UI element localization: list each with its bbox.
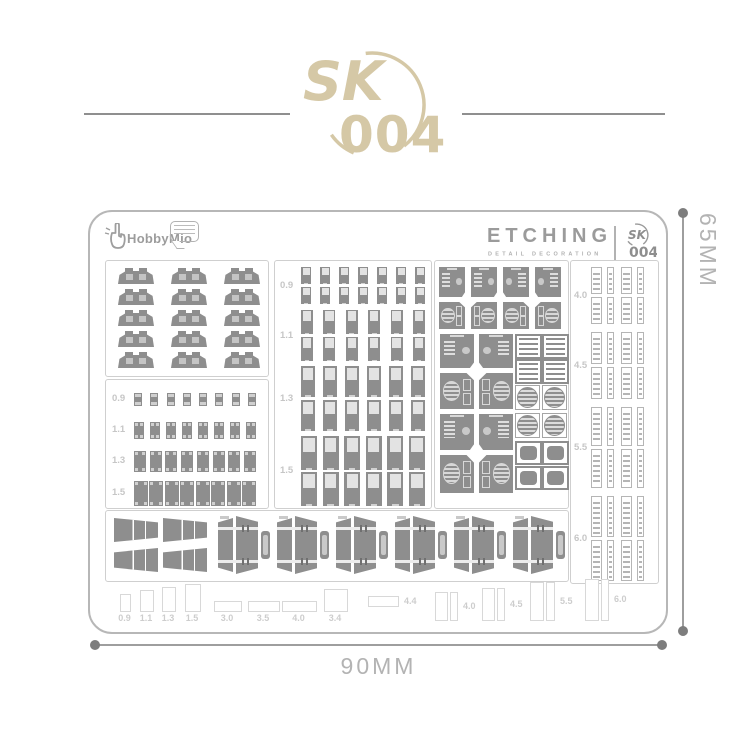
ruler-label: 1.5	[183, 613, 201, 623]
clip-slot	[232, 358, 239, 364]
buckle-window	[368, 438, 379, 452]
etched-part-vent	[503, 267, 529, 297]
clamp-tick	[483, 558, 485, 565]
panel-vent-slats	[444, 421, 455, 438]
buckle-window	[370, 311, 378, 321]
panel-disk-slot	[482, 476, 490, 489]
clip-slot	[192, 274, 199, 280]
buckle-window	[348, 338, 356, 348]
clip-slot	[232, 337, 239, 343]
clamp-tick	[424, 525, 426, 532]
clip-body	[171, 334, 207, 347]
buckle-window	[303, 338, 311, 348]
clamp-tick	[242, 558, 244, 565]
size-label: 1.3	[280, 393, 293, 404]
etched-part-disk	[479, 455, 513, 493]
buckle-window	[325, 402, 335, 414]
panel-disk-slot	[482, 379, 490, 391]
etched-part-buckle-tall	[301, 267, 311, 284]
etched-part-buckle-tall	[344, 436, 360, 470]
size-label: 1.1	[112, 424, 125, 435]
etched-part-wedge	[163, 548, 207, 572]
clip-body	[118, 334, 154, 347]
buckle-notch	[304, 283, 308, 284]
etched-part-buckle-tall	[358, 267, 368, 284]
etched-part-slat	[515, 334, 542, 359]
buckle-window	[347, 368, 357, 380]
buckle-notch	[417, 333, 422, 334]
panel-vent-dot	[538, 278, 544, 285]
etched-part-vent	[535, 267, 561, 297]
etched-part-disk	[479, 373, 513, 409]
etched-part-buckle	[182, 422, 192, 439]
ruler-swatch	[601, 579, 609, 621]
etched-part-buckle	[165, 451, 177, 472]
buckle-window	[415, 311, 423, 321]
etched-part-buckle-tall	[320, 267, 330, 284]
panel-disk-slot	[520, 306, 527, 316]
clip-slot	[192, 295, 199, 301]
dimension-dot	[678, 208, 688, 218]
clamp-tick	[537, 525, 539, 532]
etched-part-strip	[591, 449, 602, 488]
panel-vent-dot	[483, 427, 491, 435]
panel-disk-slot	[520, 316, 527, 326]
etched-part-buckle-tall	[415, 267, 425, 284]
etched-part-clip	[224, 289, 260, 305]
buckle-notch	[372, 360, 377, 361]
panel-disk-slot	[482, 393, 490, 405]
logo-number-text: 004	[339, 106, 446, 164]
etched-part-buckle	[248, 393, 256, 406]
ruler-swatch	[435, 592, 448, 621]
buckle-window	[347, 402, 357, 414]
etched-part-strip	[637, 332, 644, 364]
etched-part-buckle-tall	[387, 472, 403, 506]
clip-slot	[245, 337, 252, 343]
etched-part-buckle	[150, 451, 162, 472]
clamp-tab-inner	[440, 535, 445, 555]
etched-part-strip	[607, 332, 614, 364]
etched-part-strip	[637, 449, 644, 488]
clamp-band	[218, 527, 258, 530]
panel-vent-slats	[498, 341, 509, 357]
hatch-core	[547, 471, 564, 485]
etched-part-buckle-tall	[323, 436, 339, 470]
buckle-window	[322, 268, 329, 275]
etched-part-buckle	[134, 481, 148, 506]
ruler-label: 3.4	[326, 613, 344, 623]
buckle-window	[347, 438, 358, 452]
ruler-label: 1.1	[137, 613, 155, 623]
etched-part-buckle-tall	[301, 436, 317, 470]
etched-part-buckle-tall	[391, 337, 403, 361]
etched-part-buckle	[214, 422, 224, 439]
etched-part-clamp	[454, 516, 506, 574]
clamp-tab-inner	[263, 535, 268, 555]
clip-slot	[192, 337, 199, 343]
clamp-band	[454, 527, 494, 530]
etched-part-grille	[542, 385, 567, 410]
slat-bars	[519, 338, 538, 355]
buckle-notch	[371, 504, 377, 506]
clip-slot	[139, 337, 146, 343]
buckle-window	[392, 338, 400, 348]
hatch-core	[520, 446, 537, 460]
buckle-notch	[349, 333, 354, 334]
clamp-tick	[247, 525, 249, 532]
etched-part-slat	[515, 359, 542, 384]
ruler-label: 4.4	[404, 596, 417, 606]
buckle-notch	[371, 395, 377, 397]
etched-part-clip	[224, 268, 260, 284]
clip-slot	[245, 358, 252, 364]
etched-part-strip	[591, 297, 602, 324]
panel-disk-slot	[474, 306, 481, 316]
clamp-tick	[542, 558, 544, 565]
parts-box-clips	[105, 260, 269, 377]
etched-part-buckle-tall	[301, 337, 313, 361]
product-image: SK 004 HobbyMio ETCHING DETAIL DECORATIO…	[0, 0, 750, 742]
buckle-notch	[415, 395, 421, 397]
etching-sheet: HobbyMio ETCHING DETAIL DECORATION SK 00…	[88, 210, 668, 634]
buckle-window	[325, 368, 335, 380]
parts-box-middle-sizes: 0.91.11.31.5	[274, 260, 432, 509]
etched-part-wedge	[163, 518, 207, 542]
buckle-window	[368, 474, 379, 488]
clamp-tab-inner	[499, 535, 504, 555]
clip-slot	[139, 358, 146, 364]
etched-part-disk	[440, 455, 474, 493]
etched-part-buckle	[180, 481, 194, 506]
etched-part-hatch	[542, 441, 569, 465]
clip-body	[118, 271, 154, 284]
buckle-notch	[371, 429, 377, 431]
clamp-cap	[220, 516, 229, 519]
buckle-notch	[414, 504, 420, 506]
ruler-label: 6.0	[614, 594, 627, 604]
ruler-swatch	[450, 592, 458, 621]
buckle-window	[390, 438, 401, 452]
etched-part-buckle-tall	[301, 287, 311, 304]
panel-disk-slot	[538, 306, 545, 316]
clip-slot	[179, 337, 186, 343]
etched-part-buckle-tall	[344, 472, 360, 506]
panel-disk-slot	[538, 316, 545, 326]
buckle-notch	[394, 360, 399, 361]
clip-slot	[139, 295, 146, 301]
panel-vent-tab	[479, 268, 489, 270]
size-label: 0.9	[280, 280, 293, 291]
parts-box-bottom	[105, 510, 569, 582]
etched-part-buckle-tall	[346, 337, 358, 361]
buckle-notch	[380, 283, 384, 284]
etched-part-buckle-tall	[387, 436, 403, 470]
etched-part-buckle-tall	[323, 337, 335, 361]
header-divider-left	[84, 113, 290, 115]
buckle-notch	[342, 283, 346, 284]
buckle-window	[341, 268, 348, 275]
etched-part-clamp	[336, 516, 388, 574]
panel-disk-grille	[545, 308, 559, 324]
buckle-notch	[393, 429, 399, 431]
clip-body	[224, 355, 260, 368]
buckle-window	[348, 311, 356, 321]
parts-box-strips: 4.04.55.56.0	[570, 260, 659, 584]
buckle-notch	[306, 468, 312, 470]
buckle-notch	[399, 283, 403, 284]
etched-part-buckle	[213, 451, 225, 472]
etched-part-strip	[621, 367, 632, 399]
etched-part-hatch	[515, 466, 542, 490]
etched-part-clip	[171, 310, 207, 326]
grille-circle	[544, 415, 565, 436]
etched-part-vent	[440, 334, 474, 368]
buckle-notch	[323, 303, 327, 304]
ruler-swatch	[368, 596, 399, 607]
etched-part-slat	[542, 359, 569, 384]
clip-slot	[245, 316, 252, 322]
etched-part-buckle-tall	[366, 472, 382, 506]
grille-circle	[517, 387, 538, 408]
etched-part-buckle-tall	[389, 400, 403, 431]
etched-part-buckle	[230, 422, 240, 439]
buckle-window	[379, 288, 386, 295]
buckle-window	[417, 268, 424, 275]
width-dimension-line	[95, 644, 662, 646]
etched-part-strip	[607, 407, 614, 446]
dimension-dot	[657, 640, 667, 650]
panel-disk-grille	[443, 381, 461, 401]
etched-part-buckle-tall	[377, 287, 387, 304]
buckle-notch	[417, 360, 422, 361]
height-dimension-line	[682, 213, 684, 631]
etched-part-strip	[591, 332, 602, 364]
etched-part-buckle-tall	[415, 287, 425, 304]
grille-circle	[544, 387, 565, 408]
size-label: 4.0	[574, 290, 587, 301]
panel-disk-grille	[481, 308, 495, 324]
ruler-swatch	[248, 601, 280, 612]
panel-vent-dot	[506, 278, 512, 285]
panel-vent-dot	[488, 278, 494, 285]
clamp-tick	[542, 525, 544, 532]
clamp-tick	[306, 558, 308, 565]
etched-part-clip	[118, 268, 154, 284]
panel-vent-slats	[442, 273, 450, 287]
buckle-notch	[349, 429, 355, 431]
panel-vent-dot	[462, 427, 470, 435]
ruler-label: 4.0	[463, 601, 476, 611]
etched-part-buckle-tall	[323, 366, 337, 397]
etched-part-clip	[118, 310, 154, 326]
etched-part-buckle	[242, 481, 256, 506]
etched-part-vent	[479, 334, 513, 368]
clip-slot	[192, 316, 199, 322]
buckle-window	[360, 288, 367, 295]
clamp-cap	[456, 516, 465, 519]
clip-slot	[232, 274, 239, 280]
panel-disk-slot	[474, 316, 481, 326]
clamp-band	[395, 560, 435, 563]
buckle-notch	[349, 395, 355, 397]
ruler-swatch	[482, 588, 495, 621]
etched-part-disk	[439, 302, 465, 329]
etched-part-vent	[471, 267, 497, 297]
panel-disk-grille	[493, 381, 511, 401]
clip-body	[171, 292, 207, 305]
etched-part-disk	[503, 302, 529, 329]
panel-vent-slats	[498, 421, 509, 438]
parts-box-panels	[434, 260, 569, 509]
dimension-dot	[678, 626, 688, 636]
clamp-tick	[483, 525, 485, 532]
etched-part-vent	[479, 414, 513, 450]
parts-box-left-sizes: 0.91.11.31.5	[105, 379, 269, 509]
clamp-tab-inner	[322, 535, 327, 555]
clip-body	[171, 271, 207, 284]
buckle-window	[303, 311, 311, 321]
panel-vent-tab	[489, 335, 503, 337]
clamp-band	[513, 527, 553, 530]
buckle-notch	[394, 333, 399, 334]
etched-part-disk	[471, 302, 497, 329]
ruler-label: 4.5	[510, 599, 523, 609]
panel-disk-slot	[463, 379, 471, 391]
clamp-cap	[279, 516, 288, 519]
ruler-label: 0.9	[116, 613, 134, 623]
clip-slot	[179, 274, 186, 280]
etched-part-buckle-tall	[409, 436, 425, 470]
size-label: 1.5	[112, 487, 125, 498]
buckle-notch	[327, 360, 332, 361]
buckle-notch	[371, 468, 377, 470]
panel-disk-slot	[456, 316, 463, 326]
dimension-dot	[90, 640, 100, 650]
size-label: 5.5	[574, 442, 587, 453]
etched-part-clip	[224, 310, 260, 326]
etched-part-strip	[621, 407, 632, 446]
etching-title: ETCHING	[487, 225, 612, 248]
buckle-window	[325, 438, 336, 452]
buckle-notch	[349, 504, 355, 506]
etched-part-hatch	[542, 466, 569, 490]
etched-part-buckle-tall	[366, 436, 382, 470]
buckle-notch	[327, 395, 333, 397]
size-label: 1.5	[280, 465, 293, 476]
hatch-core	[520, 471, 537, 485]
buckle-notch	[304, 303, 308, 304]
ruler-swatch	[120, 594, 131, 612]
buckle-notch	[399, 303, 403, 304]
panel-vent-slats	[518, 273, 526, 287]
height-dimension-label: 65MM	[694, 213, 721, 631]
etched-part-strip	[621, 297, 632, 324]
etched-part-buckle	[199, 393, 207, 406]
etched-part-strip	[607, 496, 614, 537]
buckle-window	[370, 338, 378, 348]
etched-part-buckle	[227, 481, 241, 506]
buckle-window	[391, 368, 401, 380]
panel-vent-slats	[550, 273, 558, 287]
buckle-window	[325, 338, 333, 348]
etched-part-buckle	[196, 481, 210, 506]
panel-vent-slats	[474, 273, 482, 287]
etched-part-strip	[621, 496, 632, 537]
clip-body	[118, 355, 154, 368]
clip-slot	[139, 316, 146, 322]
buckle-notch	[342, 303, 346, 304]
clip-slot	[126, 295, 133, 301]
etched-part-buckle-tall	[367, 400, 381, 431]
etched-part-clip	[171, 331, 207, 347]
clip-body	[171, 355, 207, 368]
etched-part-buckle	[150, 393, 158, 406]
etched-part-buckle	[165, 481, 179, 506]
etched-part-buckle-tall	[391, 310, 403, 334]
clamp-tick	[478, 558, 480, 565]
etched-part-strip	[591, 407, 602, 446]
buckle-notch	[327, 429, 333, 431]
clip-slot	[179, 295, 186, 301]
etched-part-buckle-tall	[358, 287, 368, 304]
panel-vent-tab	[447, 268, 457, 270]
panel-vent-dot	[456, 278, 462, 285]
badge-sk-text: SK	[628, 228, 648, 242]
buckle-window	[360, 268, 367, 275]
buckle-notch	[380, 303, 384, 304]
etched-part-strip	[637, 496, 644, 537]
buckle-window	[369, 402, 379, 414]
slat-bars	[546, 363, 565, 380]
buckle-window	[369, 368, 379, 380]
etched-part-buckle-tall	[396, 267, 406, 284]
buckle-window	[398, 288, 405, 295]
buckle-window	[303, 402, 313, 414]
clamp-tab-inner	[381, 535, 386, 555]
ruler-swatch	[530, 582, 544, 621]
clamp-tick	[360, 525, 362, 532]
clamp-tick	[365, 525, 367, 532]
etched-part-buckle-tall	[409, 472, 425, 506]
etched-part-clip	[118, 352, 154, 368]
clamp-tick	[360, 558, 362, 565]
grille-circle	[517, 415, 538, 436]
panel-disk-grille	[493, 463, 511, 484]
etched-part-clip	[171, 352, 207, 368]
ruler-swatch	[162, 587, 176, 612]
clamp-band	[218, 560, 258, 563]
size-label: 1.3	[112, 455, 125, 466]
etched-part-buckle	[183, 393, 191, 406]
etched-part-buckle	[211, 481, 225, 506]
etched-part-buckle-tall	[413, 337, 425, 361]
panel-vent-slats	[444, 341, 455, 357]
panel-disk-slot	[482, 461, 490, 474]
slat-bars	[546, 338, 565, 355]
etched-part-buckle-tall	[367, 366, 381, 397]
etched-part-buckle	[215, 393, 223, 406]
ruler-swatch	[546, 582, 555, 621]
clamp-tick	[301, 558, 303, 565]
hand-icon	[104, 223, 128, 251]
etched-part-buckle-tall	[411, 366, 425, 397]
buckle-notch	[372, 333, 377, 334]
clip-slot	[232, 295, 239, 301]
etched-part-strip	[591, 367, 602, 399]
buckle-window	[391, 402, 401, 414]
etched-part-buckle	[134, 422, 144, 439]
